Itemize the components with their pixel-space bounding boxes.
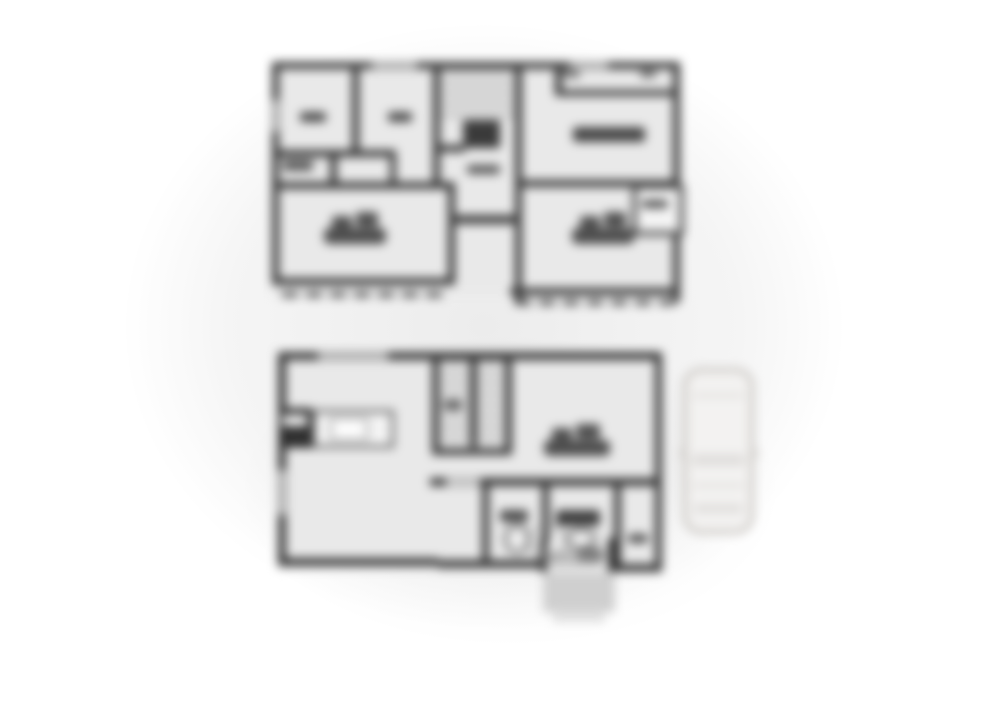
- car-hood-line: [693, 394, 744, 397]
- lower-outer-wall-left: [278, 352, 286, 565]
- blurred-content: [0, 0, 1000, 709]
- upper-wall-v-smallrooms: [352, 62, 359, 155]
- kitchen-stove: [278, 408, 312, 448]
- car-mirror-right: [750, 448, 757, 459]
- lower-outer-wall-bottom-left: [278, 558, 438, 566]
- upper-wall-v-bedroomleft-right: [448, 182, 455, 285]
- lower-door-gap-middle: [446, 479, 480, 485]
- car-top-view: [683, 368, 754, 534]
- car-roof-line: [693, 484, 744, 487]
- upper-wall-v-stair-left: [433, 62, 440, 188]
- upper-closet-right-hatch: [642, 200, 668, 208]
- upper-stair-landing: [463, 120, 500, 148]
- upper-wall-h-bedroomleft-top: [272, 182, 455, 189]
- lower-outer-wall-right: [655, 352, 662, 572]
- lower-floor-plan: [278, 352, 662, 602]
- stair-wall-bottom: [432, 448, 512, 455]
- upper-closet-right: [632, 184, 684, 236]
- lower-bed-base: [544, 440, 610, 456]
- stair-wall-left: [432, 352, 439, 455]
- car-windshield: [692, 454, 745, 466]
- upper-wall-h-rightroom-closet: [555, 90, 673, 96]
- upper-outer-wall-left: [272, 62, 279, 285]
- stair-wall-right: [505, 352, 512, 455]
- upper-balcony-rail-right: [515, 300, 675, 305]
- upper-bed-left-pillow-2: [356, 212, 378, 227]
- upper-bed-left-pillow-1: [332, 216, 352, 229]
- stair-wall-mid: [470, 352, 477, 447]
- upper-outer-wall-top: [272, 62, 680, 69]
- upper-bed-right-base: [572, 228, 634, 244]
- stair-marker: [444, 400, 462, 410]
- lower-bed-pillow-1: [552, 428, 572, 441]
- sideroom-label: [628, 534, 648, 543]
- kitchen-sink: [330, 418, 368, 440]
- toilet-bowl: [504, 524, 530, 554]
- washbasin-bowl: [566, 528, 596, 550]
- entrance-porch-step: [553, 610, 605, 622]
- car-mirror-left: [680, 448, 687, 459]
- stair-treads-right-run: [477, 360, 505, 444]
- lower-wall-v-sideroom-left: [614, 486, 621, 566]
- upper-bed-right-pillow-1: [580, 216, 600, 229]
- upper-hall-door: [450, 215, 520, 224]
- upper-rightcloset-hatch-1: [560, 70, 580, 78]
- upper-balcony-rail-left: [282, 292, 447, 297]
- entrance-step-2: [548, 560, 602, 565]
- car-rear-window: [694, 504, 743, 513]
- upper-outer-wall-bottom-right: [510, 288, 680, 295]
- upper-bed-left-base: [324, 228, 386, 244]
- upper-window-top-1: [372, 63, 417, 68]
- upper-closet-marker-2: [388, 112, 412, 122]
- lower-window-top: [318, 353, 388, 359]
- upper-hall-label: [467, 165, 500, 174]
- upper-floor-plan: [272, 62, 680, 312]
- upper-bed-right-pillow-2: [604, 212, 626, 227]
- washbasin-counter: [556, 510, 600, 526]
- entrance-porch: [543, 572, 615, 612]
- upper-stair-treads: [440, 70, 515, 120]
- lower-window-left: [279, 470, 285, 515]
- entrance-step-1: [544, 552, 606, 557]
- upper-rightcloset-hatch-2: [640, 70, 656, 78]
- upper-closet-marker-1: [300, 112, 326, 122]
- lower-wall-v-toilet-left: [482, 486, 489, 562]
- upper-window-top-2: [570, 63, 608, 68]
- upper-rightroom-label: [573, 127, 645, 142]
- lower-bed-pillow-2: [576, 424, 600, 439]
- lower-outer-wall-bottom-mid: [438, 560, 542, 568]
- kitchen-stove-burner: [283, 415, 307, 426]
- toilet-tank: [500, 510, 528, 522]
- upper-outer-wall-bottom-left: [272, 278, 455, 285]
- upper-stair-bottom-wall: [433, 145, 465, 152]
- genkan-wall-right: [608, 538, 615, 572]
- upper-closet-hatch-left: [283, 160, 313, 171]
- upper-window-left: [273, 100, 278, 132]
- blurred-floorplan-image: [0, 0, 1000, 709]
